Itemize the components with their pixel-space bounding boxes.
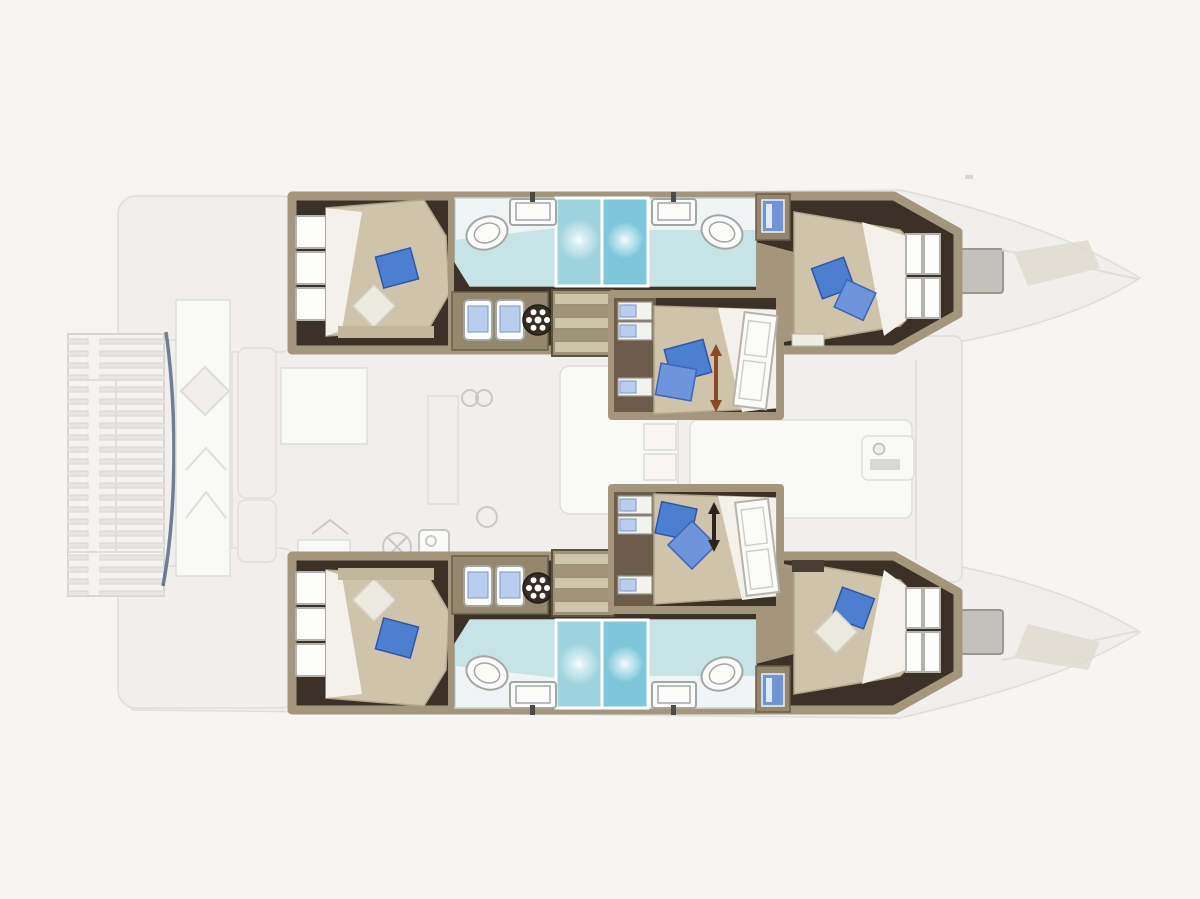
- blue-pillow-icon: [655, 363, 696, 401]
- starboard-companionway-stairs: [552, 550, 614, 616]
- slatted-stern-platform: [68, 334, 164, 596]
- saloon-side-table: [644, 424, 676, 450]
- headboard-panel: [906, 234, 922, 274]
- headboard-panel: [296, 216, 326, 248]
- headboard-panel: [924, 588, 940, 628]
- starboard-vanity: [452, 556, 553, 614]
- cockpit-table: [281, 368, 367, 444]
- catamaran-floor-plan: [0, 0, 1200, 899]
- mast-boom-strip: [176, 300, 230, 576]
- center-lower-cabin: [612, 488, 780, 610]
- headboard-panel: [924, 632, 940, 672]
- headboard-panel: [924, 278, 940, 318]
- cockpit-bench-port: [238, 348, 276, 498]
- starboard-bow-deck-hatch-icon: [959, 610, 1003, 654]
- port-bow-deck-hatch-icon: [959, 249, 1003, 293]
- center-upper-cabin: [612, 294, 780, 416]
- port-vanity: [452, 292, 553, 350]
- port-bathrooms: [455, 192, 756, 286]
- hanging-locker-icon: [762, 200, 784, 232]
- deck-fitting: [965, 175, 973, 179]
- starboard-bathrooms: [455, 620, 756, 715]
- faucet: [671, 705, 676, 715]
- saloon-side-table: [644, 454, 676, 480]
- cockpit-bench-starboard: [238, 500, 276, 562]
- faucet: [530, 705, 535, 715]
- faucet: [671, 192, 676, 202]
- shower-drain-glow: [607, 222, 643, 258]
- bed-footboard: [338, 568, 434, 580]
- bench: [792, 334, 824, 346]
- port-companionway-stairs: [552, 290, 614, 356]
- hanging-locker-icon: [762, 674, 784, 706]
- faucet: [530, 192, 535, 202]
- headboard-panel: [296, 252, 326, 284]
- bed-footboard: [338, 326, 434, 338]
- starboard-wardrobe: [756, 666, 790, 712]
- headboard-panel: [906, 278, 922, 318]
- floor-plan-canvas: [0, 0, 1200, 899]
- headboard-panel: [924, 234, 940, 274]
- vent: [792, 560, 824, 572]
- headboard-panel: [296, 644, 326, 676]
- headboard-panel: [296, 288, 326, 320]
- helm-panel: [870, 459, 900, 470]
- headboard-panel: [906, 588, 922, 628]
- headboard-panel: [906, 632, 922, 672]
- shower-drain-glow: [559, 220, 599, 260]
- shower-drain-glow: [607, 646, 643, 682]
- headboard-panel: [296, 572, 326, 604]
- port-aft-cabin: [296, 200, 449, 338]
- helm-instrument-icon: [874, 444, 885, 455]
- port-wardrobe: [756, 194, 790, 240]
- wheel-hatch-icon: [523, 305, 553, 335]
- headboard-panel: [296, 608, 326, 640]
- shower-drain-glow: [559, 644, 599, 684]
- wheel-hatch-icon: [523, 573, 553, 603]
